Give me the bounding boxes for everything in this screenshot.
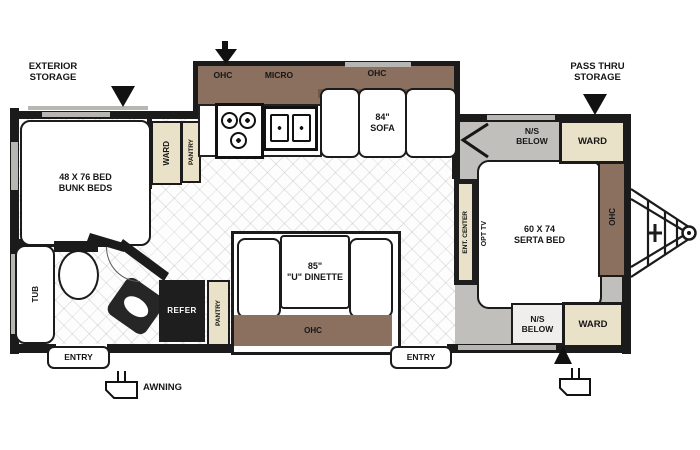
entry-right-label: ENTRY (407, 352, 436, 362)
bedroom-overhead-cabinets: OHC (598, 156, 626, 277)
stove (215, 103, 264, 159)
sofa-cushion (320, 88, 360, 158)
bathtub: TUB (15, 245, 55, 344)
kitchen-sink (263, 106, 318, 151)
wardrobe-bottom-label: WARD (578, 319, 607, 330)
exterior-storage-arrow-icon (111, 86, 135, 107)
serta-bed-size: 60 X 74 (524, 224, 555, 235)
awning-label: AWNING (143, 383, 205, 394)
pantry-bottom: PANTRY (207, 280, 230, 346)
sink-basin (292, 114, 311, 142)
dinette-ohc-label: OHC (304, 326, 322, 336)
sofa-cushion (405, 88, 457, 158)
ns-top-line1: N/S (525, 126, 539, 136)
stove-burner (221, 112, 238, 129)
dinette-overhead-cabinets: OHC (234, 315, 392, 346)
window-bed-head (487, 115, 555, 120)
sofa-size: 84" (375, 112, 389, 123)
ns-bottom-line1: N/S (530, 314, 544, 324)
exterior-storage-line2: STORAGE (30, 72, 77, 83)
wardrobe-bottom: WARD (562, 302, 624, 348)
sofa-cushion-center: 84" SOFA (358, 88, 407, 158)
dinette-block: 85" "U" DINETTE OHC (231, 231, 401, 355)
nightstand-bottom: N/S BELOW (511, 303, 564, 345)
serta-bed: 60 X 74 SERTA BED (477, 160, 602, 309)
pantry-bottom-label: PANTRY (215, 300, 222, 326)
bathtub-label: TUB (31, 286, 40, 302)
pass-thru-line1: PASS THRU (570, 61, 624, 72)
opt-tv-label: OPT TV (481, 221, 488, 246)
entry-badge-left: ENTRY (47, 346, 110, 369)
sofa-ohc-label: OHC (355, 69, 399, 79)
stove-burner (239, 112, 256, 129)
dinette-seat-left (237, 238, 281, 318)
toilet (58, 250, 99, 300)
bath-sink-bowl (120, 291, 152, 320)
serta-bed-name: SERTA BED (514, 235, 565, 246)
stove-burner (230, 132, 247, 149)
hitch-icon (631, 189, 696, 277)
window-rear (11, 142, 18, 190)
pantry-left-label: PANTRY (188, 139, 195, 165)
kitchen-ohc-label: OHC (202, 71, 244, 81)
slide-flange-bunk (28, 106, 148, 110)
wardrobe-top: WARD (559, 120, 626, 164)
nightstand-bottom-label: N/S BELOW (522, 314, 554, 334)
dinette-table: 85" "U" DINETTE (280, 235, 350, 309)
wardrobe-left: WARD (151, 121, 182, 185)
sofa-name: SOFA (370, 123, 395, 134)
sink-basin (270, 114, 289, 142)
dinette-seat-right (349, 238, 393, 318)
bunk-bed-size: 48 X 76 BED (59, 172, 112, 183)
wardrobe-left-label: WARD (162, 141, 171, 165)
bunk-bed-name: BUNK BEDS (59, 183, 113, 194)
pass-thru-storage-arrow-icon (583, 94, 607, 115)
exterior-storage-line1: EXTERIOR (29, 61, 78, 72)
awning-icon (106, 371, 137, 398)
floorplan-canvas: 48 X 76 BED BUNK BEDS WARD PANTRY TUB RE… (0, 0, 700, 450)
ns-top-line2: BELOW (516, 136, 548, 146)
front-awning-icon (560, 368, 590, 395)
wardrobe-top-label: WARD (578, 136, 607, 147)
pass-thru-storage-callout: PASS THRU STORAGE (545, 62, 650, 84)
entry-badge-right: ENTRY (390, 346, 452, 369)
refrigerator-label: REFER (167, 306, 197, 316)
dinette-size: 85" (308, 261, 322, 272)
pass-thru-line2: STORAGE (574, 72, 621, 83)
entertainment-center: ENT. CENTER (454, 179, 477, 285)
ns-bottom-line2: BELOW (522, 324, 554, 334)
entertainment-center-label: ENT. CENTER (462, 211, 469, 254)
window-sofa (345, 62, 411, 67)
exterior-storage-callout: EXTERIOR STORAGE (6, 62, 100, 84)
bedroom-ohc-label: OHC (608, 208, 617, 226)
bunk-bed: 48 X 76 BED BUNK BEDS (20, 120, 151, 246)
window-bottom-right (458, 345, 556, 350)
refrigerator: REFER (159, 280, 205, 342)
nightstand-top-label: N/S BELOW (506, 127, 558, 147)
entertainment-center-face: ENT. CENTER (459, 184, 472, 280)
window-bunk (42, 112, 110, 117)
microwave-label: MICRO (250, 71, 308, 81)
entry-left-label: ENTRY (64, 352, 93, 362)
dinette-name: "U" DINETTE (287, 272, 343, 283)
